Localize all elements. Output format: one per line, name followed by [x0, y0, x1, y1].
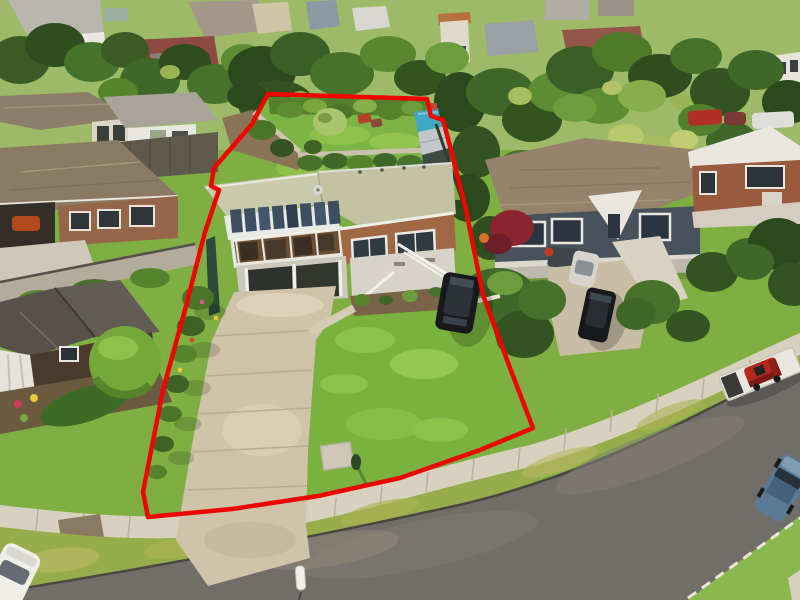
orange-car-in-carport: [12, 216, 40, 231]
concrete-pad: [320, 442, 353, 470]
red-car: [688, 109, 723, 126]
aerial-photo-canvas: [0, 0, 800, 600]
aerial-photo: [0, 0, 800, 600]
small-shrub-front: [351, 454, 361, 470]
orange-item: [479, 233, 489, 243]
small-shrub: [304, 140, 322, 154]
red-chair: [545, 248, 554, 257]
maroon-car: [724, 112, 746, 125]
white-parked-car: [752, 111, 795, 129]
small-tree: [313, 108, 347, 136]
